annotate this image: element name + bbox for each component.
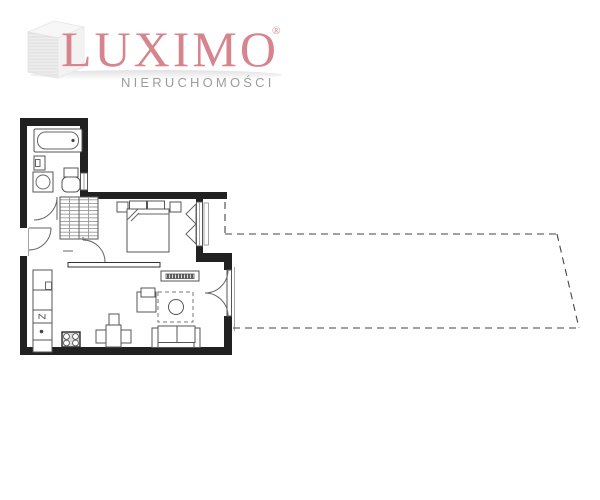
floor-plan [0, 0, 600, 500]
dining-chair-top [109, 314, 119, 325]
dining-chair-right [121, 330, 131, 343]
coffee-table [169, 300, 184, 315]
balcony-outline [225, 202, 579, 328]
armchair [137, 288, 156, 312]
bedroom-door [83, 237, 105, 262]
tv-console [161, 271, 199, 281]
pillows [130, 201, 165, 209]
kitchen-cabinet [33, 290, 52, 310]
sofa [152, 326, 200, 348]
stove-four-burners [62, 332, 80, 347]
dining-set [96, 314, 131, 347]
kitchen-cabinet [33, 340, 52, 352]
partition-wall [68, 263, 160, 268]
bedroom-window [186, 202, 209, 246]
double-bed [127, 209, 169, 252]
bathroom-window [81, 173, 88, 190]
fridge-unit [33, 310, 52, 323]
nightstand-left [117, 202, 128, 212]
toilet [62, 168, 80, 192]
washbasin [33, 172, 53, 192]
screenshot-canvas: LUXIMO ® NIERUCHOMOŚCI [0, 0, 600, 500]
kitchen-cabinet [33, 270, 52, 290]
dining-table [106, 325, 121, 347]
entrance-door [29, 228, 52, 256]
bathtub [34, 129, 82, 152]
bathroom-cabinet [34, 156, 45, 170]
sink-unit [33, 323, 52, 340]
bathroom-door [34, 197, 57, 220]
nightstand-right [170, 202, 181, 212]
wardrobe [60, 197, 98, 239]
kitchen [33, 270, 80, 352]
bedroom [83, 201, 209, 262]
dining-chair-left [96, 330, 106, 343]
